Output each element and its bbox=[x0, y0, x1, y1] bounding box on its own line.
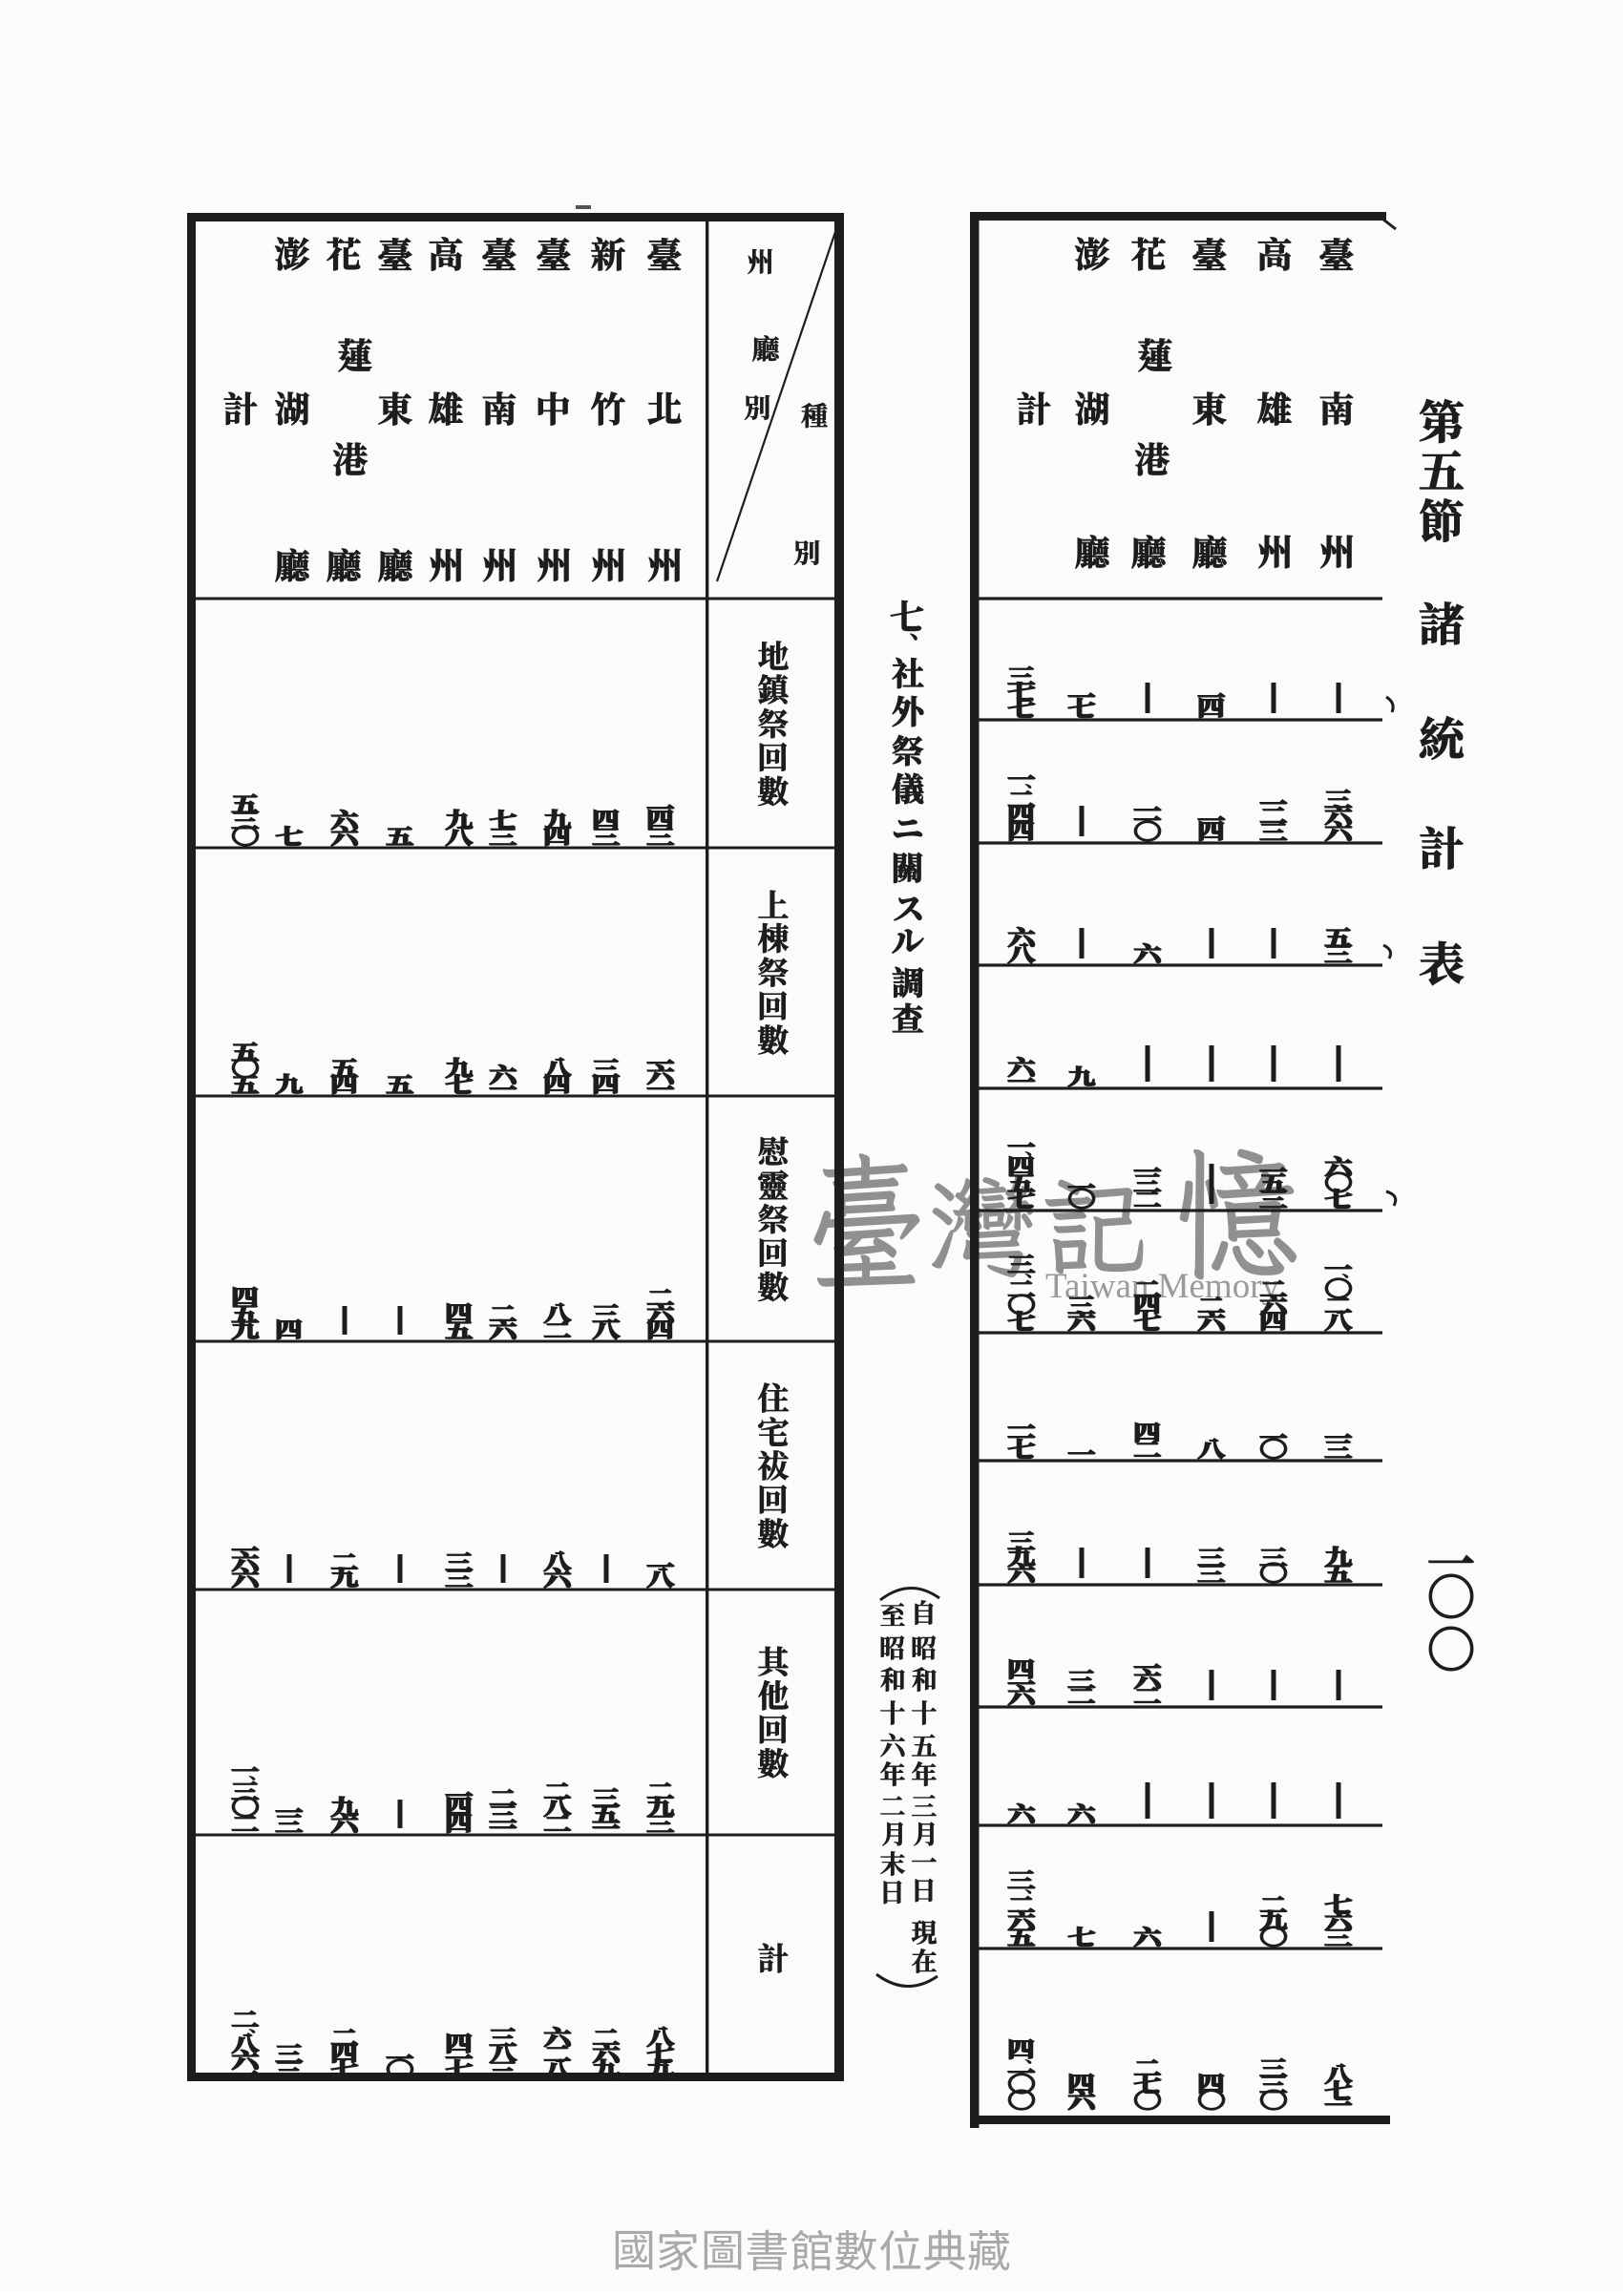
svg-text:Taiwan Memory.: Taiwan Memory. bbox=[1045, 1267, 1286, 1306]
